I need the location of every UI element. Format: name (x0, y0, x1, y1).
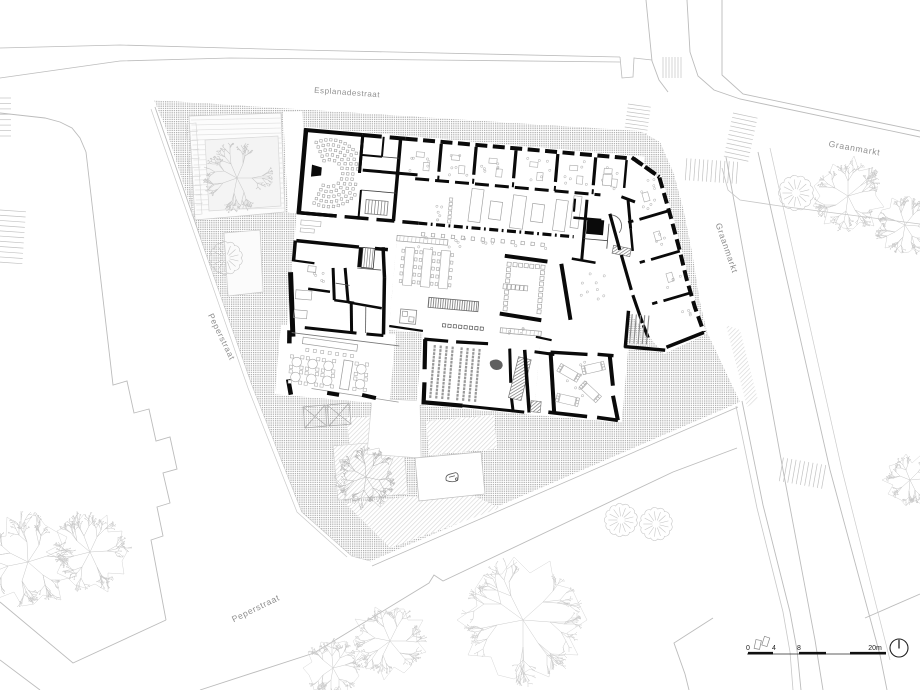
svg-text:0: 0 (746, 645, 750, 652)
svg-text:20m: 20m (868, 645, 882, 652)
svg-text:8: 8 (797, 645, 801, 652)
svg-text:4: 4 (772, 645, 776, 652)
